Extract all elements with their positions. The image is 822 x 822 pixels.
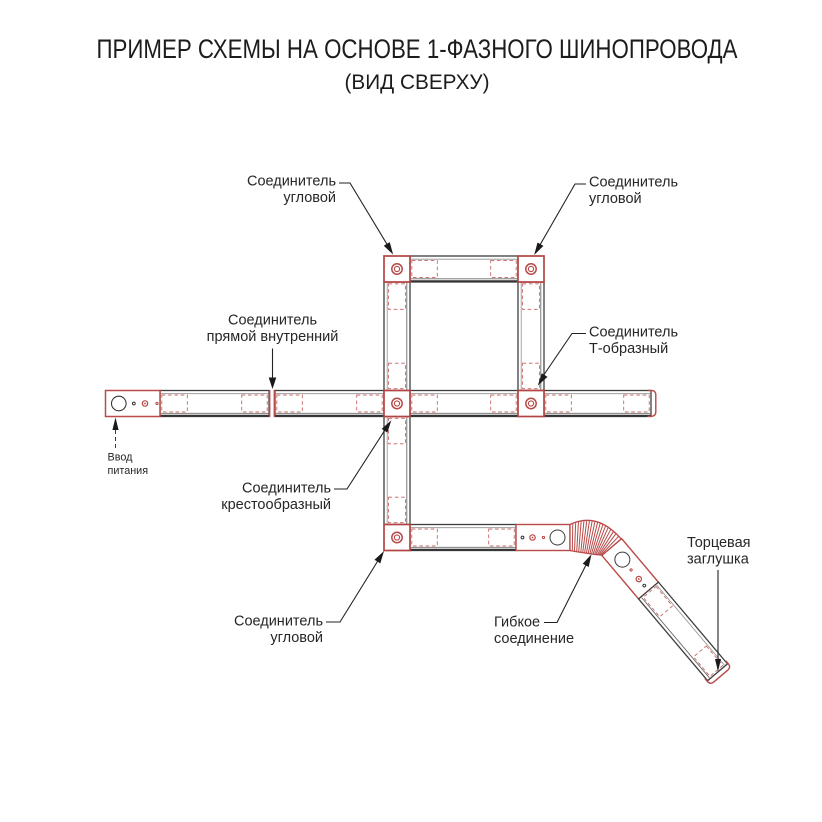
svg-text:Соединитель: Соединитель [247, 174, 336, 190]
svg-text:Соединитель: Соединитель [589, 175, 678, 191]
svg-text:соединение: соединение [494, 631, 574, 647]
svg-text:Т-образный: Т-образный [589, 341, 668, 357]
svg-text:Соединитель: Соединитель [234, 614, 323, 630]
svg-text:Соединитель: Соединитель [589, 325, 678, 341]
svg-text:Гибкое: Гибкое [494, 615, 540, 631]
svg-text:(ВИД СВЕРХУ): (ВИД СВЕРХУ) [345, 71, 490, 94]
svg-text:прямой внутренний: прямой внутренний [207, 329, 339, 345]
svg-text:Ввод: Ввод [108, 452, 134, 464]
svg-text:Торцевая: Торцевая [687, 535, 751, 551]
svg-text:угловой: угловой [589, 191, 642, 207]
svg-text:заглушка: заглушка [687, 552, 750, 568]
svg-text:ПРИМЕР СХЕМЫ НА ОСНОВЕ 1-ФАЗНО: ПРИМЕР СХЕМЫ НА ОСНОВЕ 1-ФАЗНОГО ШИНОПРО… [97, 34, 738, 64]
svg-text:угловой: угловой [283, 190, 336, 206]
svg-text:питания: питания [108, 465, 149, 477]
svg-text:Соединитель: Соединитель [228, 313, 317, 329]
svg-text:угловой: угловой [270, 630, 323, 646]
svg-text:крестообразный: крестообразный [221, 497, 331, 513]
svg-text:Соединитель: Соединитель [242, 481, 331, 497]
